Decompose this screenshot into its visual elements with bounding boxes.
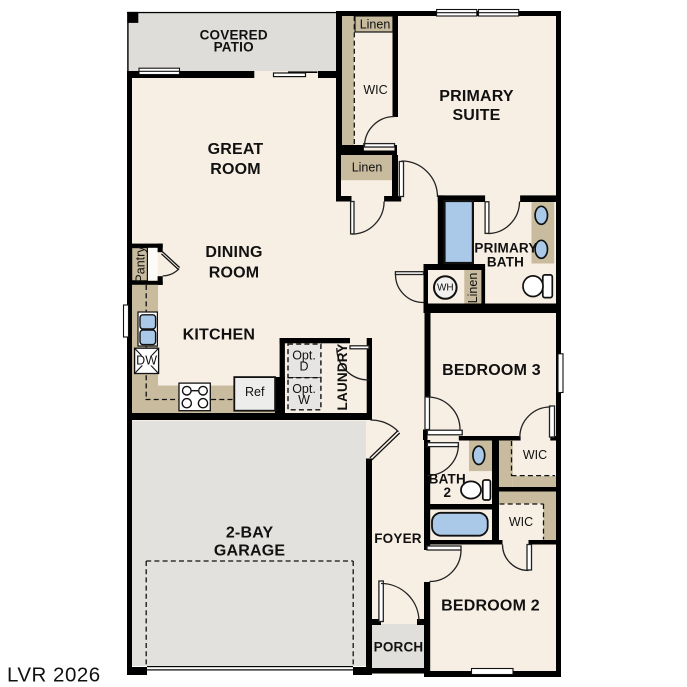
svg-text:BATH: BATH [487, 255, 524, 270]
svg-text:Linen: Linen [352, 160, 383, 174]
svg-text:DW: DW [136, 354, 157, 368]
svg-text:2-BAY: 2-BAY [226, 525, 274, 542]
svg-text:PRIMARY: PRIMARY [474, 240, 537, 255]
svg-text:WIC: WIC [523, 448, 547, 462]
svg-text:W: W [298, 393, 310, 407]
svg-text:D: D [299, 360, 308, 374]
svg-text:Linen: Linen [466, 273, 480, 304]
svg-text:FOYER: FOYER [374, 531, 422, 546]
svg-text:PATIO: PATIO [214, 40, 254, 55]
svg-text:LVR 2026: LVR 2026 [7, 664, 101, 687]
svg-text:2: 2 [443, 485, 451, 500]
svg-text:PORCH: PORCH [374, 640, 424, 655]
svg-text:GARAGE: GARAGE [214, 543, 286, 560]
svg-text:ROOM: ROOM [209, 264, 260, 281]
svg-text:WH: WH [437, 282, 454, 293]
svg-text:Pantry: Pantry [134, 246, 148, 283]
svg-text:WIC: WIC [363, 83, 387, 97]
svg-text:KITCHEN: KITCHEN [183, 327, 256, 344]
svg-text:DINING: DINING [205, 244, 262, 261]
svg-text:Ref: Ref [245, 385, 265, 399]
svg-text:BEDROOM 3: BEDROOM 3 [442, 362, 541, 379]
svg-text:Linen: Linen [360, 18, 391, 32]
svg-text:GREAT: GREAT [208, 141, 264, 158]
svg-text:WIC: WIC [509, 515, 533, 529]
svg-text:PRIMARY: PRIMARY [439, 88, 514, 105]
svg-text:ROOM: ROOM [210, 161, 261, 178]
svg-text:SUITE: SUITE [452, 107, 500, 124]
svg-text:LAUNDRY: LAUNDRY [335, 344, 350, 411]
svg-text:BEDROOM 2: BEDROOM 2 [441, 598, 540, 615]
